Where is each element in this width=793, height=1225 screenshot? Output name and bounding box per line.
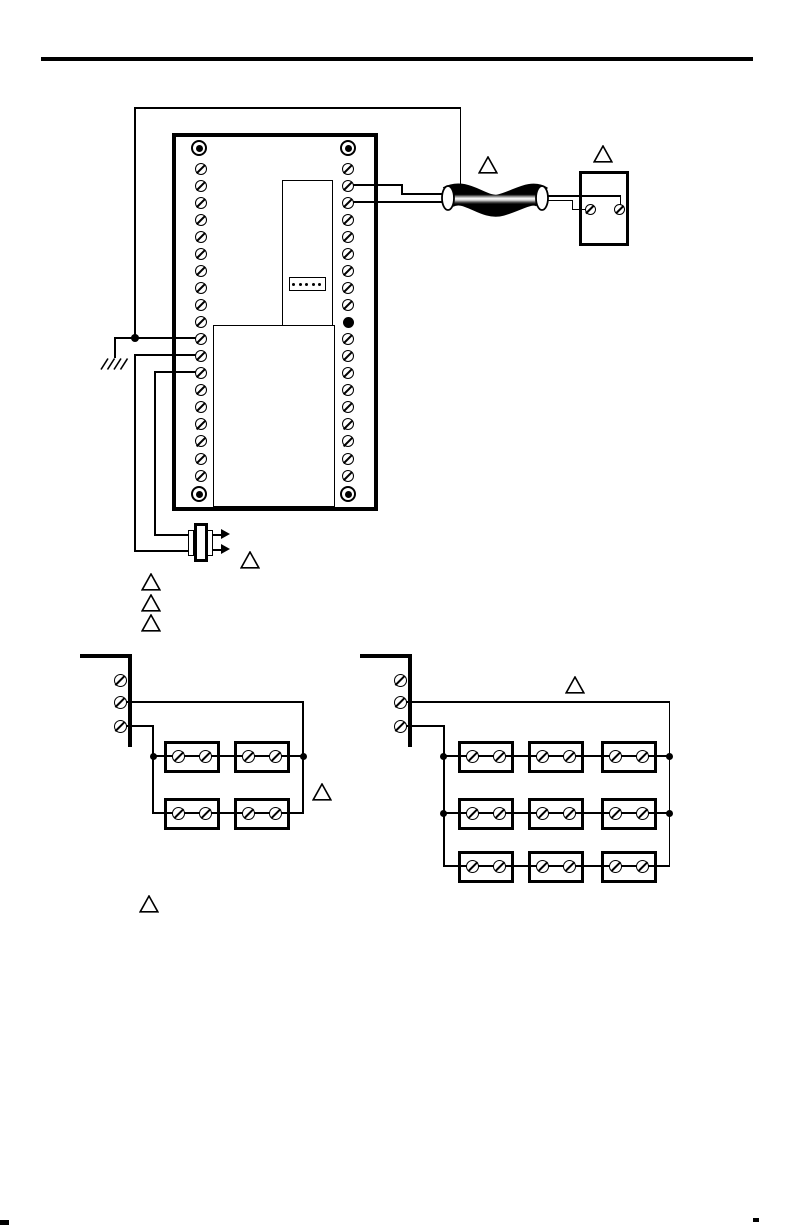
wire-terminal12-horizontal bbox=[134, 354, 201, 356]
controller-left-terminal bbox=[195, 316, 207, 328]
screw-slot-icon bbox=[196, 181, 205, 190]
screw-slot-icon bbox=[467, 861, 477, 871]
block-terminal-screw bbox=[466, 860, 479, 873]
screw-slot-icon bbox=[637, 808, 647, 818]
strip-terminal-screw bbox=[114, 674, 127, 687]
screw-slot-icon bbox=[173, 751, 183, 761]
controller-right-terminal bbox=[342, 265, 354, 277]
screw-slot-icon bbox=[196, 164, 205, 173]
ground-symbol bbox=[99, 356, 129, 372]
screw-slot-icon bbox=[196, 317, 205, 326]
controller-right-terminal bbox=[342, 197, 354, 209]
note-marker-triangle-icon bbox=[478, 156, 498, 174]
controller-left-terminal bbox=[195, 470, 207, 482]
block-terminal-screw bbox=[609, 807, 622, 820]
left-strip-bracket-horizontal bbox=[80, 654, 132, 658]
ground-stem bbox=[114, 337, 116, 358]
strip-terminal-screw bbox=[114, 720, 127, 733]
mounting-hole-center bbox=[345, 491, 352, 498]
connector-pin bbox=[292, 283, 295, 286]
screw-slot-icon bbox=[637, 751, 647, 761]
screw-slot-icon bbox=[270, 751, 280, 761]
block-terminal-screw bbox=[493, 807, 506, 820]
screw-slot-icon bbox=[200, 751, 210, 761]
screw-slot-icon bbox=[196, 386, 205, 395]
controller-right-terminal bbox=[342, 470, 354, 482]
screw-slot-icon bbox=[343, 420, 352, 429]
right-strip-bracket-horizontal bbox=[360, 654, 412, 658]
block-terminal-screw bbox=[199, 750, 212, 763]
screw-slot-icon bbox=[115, 721, 125, 731]
controller-left-terminal bbox=[195, 180, 207, 192]
screw-slot-icon bbox=[610, 861, 620, 871]
screw-slot-icon bbox=[395, 697, 405, 707]
screw-slot-icon bbox=[196, 437, 205, 446]
mounting-hole bbox=[340, 140, 356, 156]
strip-terminal-screw bbox=[394, 674, 407, 687]
net-junction-dot bbox=[666, 753, 673, 760]
screw-slot-icon bbox=[270, 808, 280, 818]
net-junction-dot bbox=[440, 810, 447, 817]
screw-slot-icon bbox=[564, 861, 574, 871]
block-terminal-screw bbox=[563, 860, 576, 873]
screw-slot-icon bbox=[343, 454, 352, 463]
screw-slot-icon bbox=[564, 808, 574, 818]
wire-sensor-lower-lead bbox=[134, 550, 189, 552]
block-terminal-screw bbox=[536, 860, 549, 873]
manual-page bbox=[0, 0, 793, 1225]
rnet-right-bus bbox=[669, 701, 671, 867]
screw-slot-icon bbox=[637, 861, 647, 871]
block-terminal-screw bbox=[172, 750, 185, 763]
shield-ground-junction-dot bbox=[131, 334, 139, 342]
screw-slot-icon bbox=[343, 198, 352, 207]
block-terminal-screw bbox=[242, 807, 255, 820]
block-terminal-screw bbox=[466, 750, 479, 763]
screw-slot-icon bbox=[196, 351, 205, 360]
screw-slot-icon bbox=[115, 697, 125, 707]
screw-slot-icon bbox=[537, 808, 547, 818]
note-marker-triangle-icon bbox=[141, 614, 161, 632]
screw-slot-icon bbox=[494, 861, 504, 871]
note-marker-triangle-icon bbox=[141, 573, 161, 591]
wire-conductor1-a bbox=[348, 184, 402, 186]
screw-slot-icon bbox=[467, 808, 477, 818]
controller-right-terminal bbox=[342, 180, 354, 192]
mounting-hole-center bbox=[196, 491, 203, 498]
screw-slot-icon bbox=[196, 198, 205, 207]
block-terminal-screw bbox=[269, 807, 282, 820]
screw-slot-icon bbox=[343, 249, 352, 258]
screw-slot-icon bbox=[196, 232, 205, 241]
block-terminal-screw bbox=[636, 860, 649, 873]
screw-slot-icon bbox=[494, 751, 504, 761]
remote-device-terminal bbox=[614, 204, 625, 215]
screw-slot-icon bbox=[343, 300, 352, 309]
net-junction-dot bbox=[666, 810, 673, 817]
controller-module-tall bbox=[282, 180, 333, 326]
remote-device-terminal bbox=[585, 204, 596, 215]
lnet-wire-mid-h bbox=[126, 701, 303, 703]
strip-terminal-screw bbox=[114, 696, 127, 709]
controller-left-terminal bbox=[195, 231, 207, 243]
block-terminal-screw bbox=[536, 807, 549, 820]
screw-slot-icon bbox=[395, 721, 405, 731]
screw-slot-icon bbox=[196, 283, 205, 292]
screw-slot-icon bbox=[343, 181, 352, 190]
screw-slot-icon bbox=[196, 300, 205, 309]
lnet-row2-right-v bbox=[302, 756, 304, 814]
screw-slot-icon bbox=[610, 808, 620, 818]
screw-slot-icon bbox=[395, 675, 405, 685]
note-marker-triangle-icon bbox=[593, 145, 613, 163]
mounting-hole bbox=[191, 140, 207, 156]
wire-sensor-upper-lead bbox=[154, 534, 189, 536]
block-terminal-screw bbox=[242, 750, 255, 763]
screw-slot-icon bbox=[343, 369, 352, 378]
mounting-hole-center bbox=[345, 145, 352, 152]
lnet-wire-right-v bbox=[302, 701, 304, 757]
page-corner-mark-left bbox=[0, 1220, 9, 1225]
screw-slot-icon bbox=[196, 420, 205, 429]
controller-right-terminal bbox=[342, 248, 354, 260]
controller-left-terminal bbox=[195, 453, 207, 465]
controller-left-terminal bbox=[195, 282, 207, 294]
shield-wire-top bbox=[134, 107, 461, 109]
block-terminal-screw bbox=[636, 750, 649, 763]
note-marker-triangle-icon bbox=[312, 783, 332, 801]
controller-left-terminal bbox=[195, 214, 207, 226]
sensor-body bbox=[194, 523, 208, 562]
page-corner-mark-right bbox=[753, 1218, 759, 1222]
wire-terminal13-vertical bbox=[154, 371, 156, 535]
mounting-hole bbox=[340, 486, 356, 502]
controller-right-terminal bbox=[342, 163, 354, 175]
screw-slot-icon bbox=[196, 471, 205, 480]
screw-slot-icon bbox=[343, 334, 352, 343]
screw-slot-icon bbox=[243, 751, 253, 761]
note-marker-triangle-icon bbox=[139, 895, 159, 913]
controller-module-lower bbox=[213, 325, 335, 507]
controller-left-terminal bbox=[195, 333, 207, 345]
screw-slot-icon bbox=[343, 386, 352, 395]
wire-shield-to-terminal bbox=[134, 337, 201, 339]
screw-slot-icon bbox=[196, 334, 205, 343]
screw-slot-icon bbox=[467, 751, 477, 761]
screw-slot-icon bbox=[343, 283, 352, 292]
screw-slot-icon bbox=[343, 215, 352, 224]
screw-slot-icon bbox=[343, 471, 352, 480]
screw-slot-icon bbox=[343, 164, 352, 173]
shielded-cable bbox=[435, 175, 555, 221]
block-terminal-screw bbox=[493, 860, 506, 873]
screw-slot-icon bbox=[343, 351, 352, 360]
lnet-wire-left-v bbox=[152, 725, 154, 814]
connector-pin bbox=[299, 283, 302, 286]
net-junction-dot bbox=[440, 753, 447, 760]
mounting-hole bbox=[191, 486, 207, 502]
net-junction-dot bbox=[150, 753, 157, 760]
screw-slot-icon bbox=[196, 215, 205, 224]
controller-left-terminal bbox=[195, 265, 207, 277]
screw-slot-icon bbox=[586, 205, 595, 214]
block-terminal-screw bbox=[563, 807, 576, 820]
screw-slot-icon bbox=[343, 266, 352, 275]
rnet-wire-mid-h bbox=[406, 701, 670, 703]
screw-slot-icon bbox=[610, 751, 620, 761]
screw-slot-icon bbox=[115, 675, 125, 685]
block-terminal-screw bbox=[609, 750, 622, 763]
screw-slot-icon bbox=[196, 403, 205, 412]
controller-left-terminal bbox=[195, 197, 207, 209]
screw-slot-icon bbox=[343, 437, 352, 446]
screw-slot-icon bbox=[537, 751, 547, 761]
controller-right-terminal bbox=[342, 214, 354, 226]
rnet-wire-bot-h bbox=[406, 725, 444, 727]
controller-right-terminal bbox=[342, 333, 354, 345]
block-terminal-screw bbox=[172, 807, 185, 820]
screw-slot-icon bbox=[343, 232, 352, 241]
block-terminal-screw bbox=[609, 860, 622, 873]
wire-device-a1 bbox=[545, 195, 621, 197]
sensor-arrow-top-icon bbox=[221, 529, 230, 539]
controller-left-terminal bbox=[195, 299, 207, 311]
block-terminal-screw bbox=[563, 750, 576, 763]
shield-wire-left-vertical bbox=[134, 107, 136, 338]
screw-slot-icon bbox=[173, 808, 183, 818]
connector-pin bbox=[318, 283, 321, 286]
screw-slot-icon bbox=[200, 808, 210, 818]
block-terminal-screw bbox=[269, 750, 282, 763]
controller-right-terminal bbox=[342, 453, 354, 465]
block-terminal-screw bbox=[493, 750, 506, 763]
note-marker-triangle-icon bbox=[240, 551, 260, 569]
screw-slot-icon bbox=[494, 808, 504, 818]
screw-slot-icon bbox=[196, 369, 205, 378]
screw-slot-icon bbox=[196, 454, 205, 463]
screw-slot-icon bbox=[615, 205, 624, 214]
note-marker-triangle-icon bbox=[565, 676, 585, 694]
net-junction-dot bbox=[300, 753, 307, 760]
screw-slot-icon bbox=[196, 249, 205, 258]
strip-terminal-screw bbox=[394, 696, 407, 709]
wire-terminal12-vertical bbox=[134, 354, 136, 551]
sensor-arrow-bottom-icon bbox=[221, 544, 230, 554]
wire-terminal13-horizontal bbox=[154, 371, 201, 373]
controller-right-terminal-solid bbox=[343, 317, 354, 328]
connector-pin bbox=[312, 283, 315, 286]
controller-right-terminal bbox=[342, 282, 354, 294]
strip-terminal-screw bbox=[394, 720, 407, 733]
screw-slot-icon bbox=[564, 751, 574, 761]
screw-slot-icon bbox=[537, 861, 547, 871]
lnet-wire-bot-h bbox=[126, 725, 153, 727]
wire-conductor2 bbox=[348, 201, 448, 204]
controller-left-terminal bbox=[195, 248, 207, 260]
screw-slot-icon bbox=[243, 808, 253, 818]
controller-right-terminal bbox=[342, 231, 354, 243]
block-terminal-screw bbox=[466, 807, 479, 820]
screw-slot-icon bbox=[343, 403, 352, 412]
controller-left-terminal bbox=[195, 163, 207, 175]
connector-pin bbox=[305, 283, 308, 286]
block-terminal-screw bbox=[536, 750, 549, 763]
controller-right-terminal bbox=[342, 299, 354, 311]
screw-slot-icon bbox=[196, 266, 205, 275]
note-marker-triangle-icon bbox=[141, 594, 161, 612]
rnet-left-bus bbox=[443, 725, 445, 867]
block-terminal-screw bbox=[636, 807, 649, 820]
block-terminal-screw bbox=[199, 807, 212, 820]
page-header-rule bbox=[41, 57, 753, 61]
mounting-hole-center bbox=[196, 145, 203, 152]
